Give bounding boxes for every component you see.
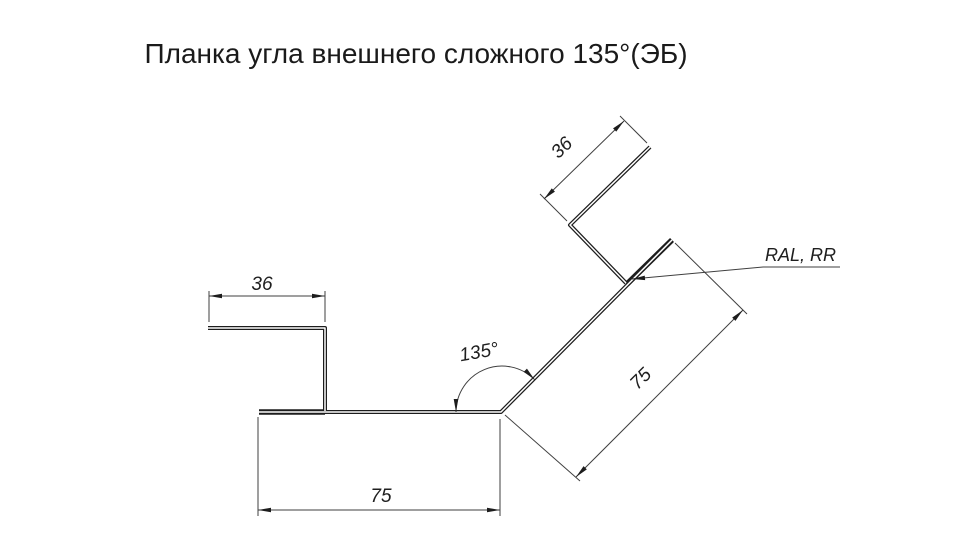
angle-label: 135° (458, 339, 501, 367)
coating-label: RAL, RR (765, 245, 836, 265)
arrowhead (732, 308, 744, 320)
dimension-diagonal-flange: 75 (505, 243, 747, 481)
arrowhead (487, 508, 500, 513)
extension-line (675, 243, 747, 314)
profile-left-edge-fold (208, 328, 325, 411)
extension-line (540, 194, 567, 221)
arrowhead (542, 188, 555, 200)
dimension-bottom-flange: 75 (258, 417, 500, 516)
arrowhead (209, 294, 222, 299)
profile-outline (208, 147, 672, 412)
leader-line (632, 267, 840, 279)
arrowhead (312, 294, 325, 299)
arrowhead (613, 119, 626, 131)
dimension-line (544, 121, 624, 199)
dim-label-diagonal-flange: 75 (626, 364, 656, 394)
dimension-corner-angle: 135° (454, 339, 536, 412)
dim-label-upper-right-flange: 36 (547, 133, 577, 163)
technical-drawing: 36 75 36 75 135° RAL, RR (0, 0, 960, 540)
extension-line (505, 415, 580, 481)
profile-upper-edge-fold (570, 147, 650, 283)
extension-line (620, 116, 647, 143)
dimension-top-flange: 36 (209, 274, 325, 322)
arrowhead (258, 508, 271, 513)
arrowhead (574, 466, 586, 478)
dim-label-bottom-flange: 75 (370, 486, 392, 507)
arrowhead (524, 369, 536, 381)
dimension-upper-right-flange: 36 (540, 116, 647, 221)
dimension-line (576, 310, 743, 477)
profile-core-line (208, 328, 325, 411)
dim-label-top-flange: 36 (251, 274, 273, 295)
